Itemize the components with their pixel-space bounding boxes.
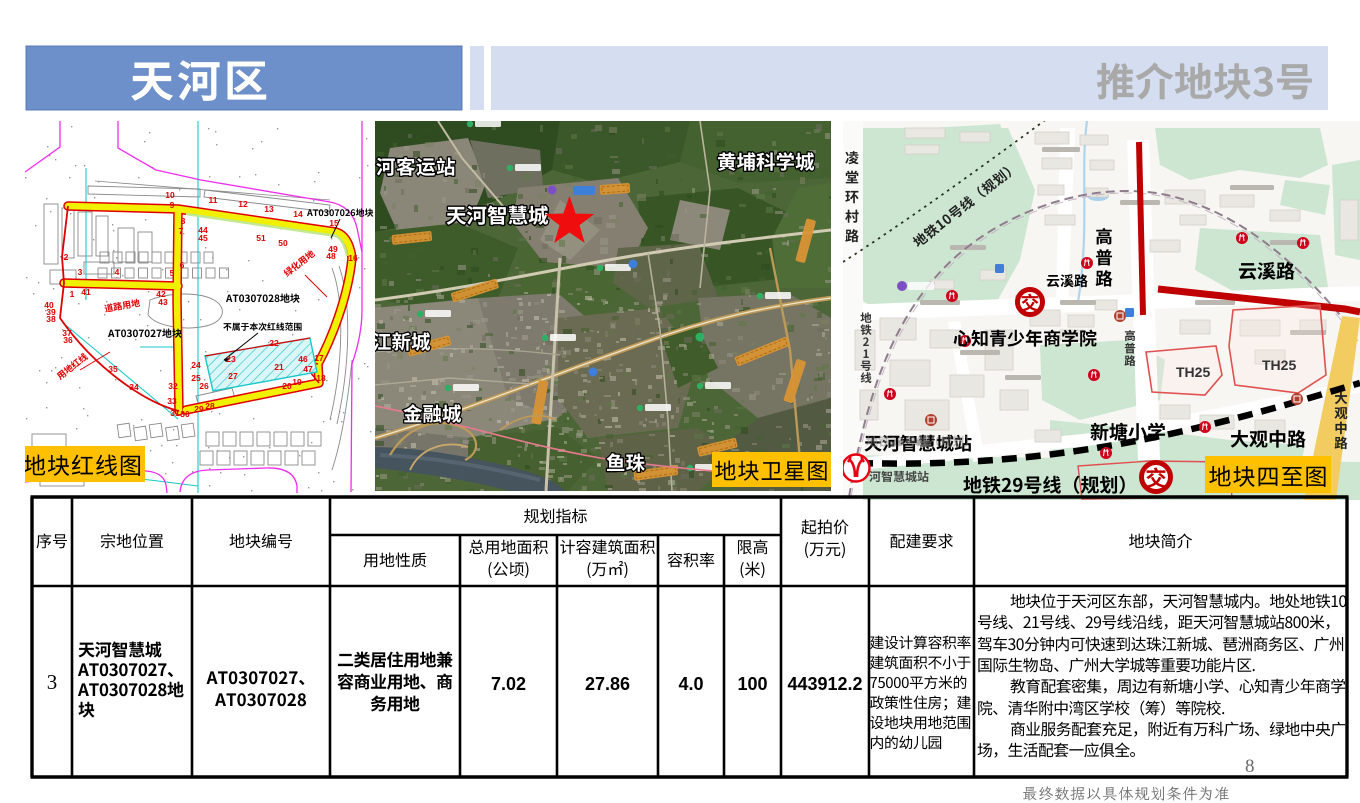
svg-text:27.86: 27.86 bbox=[585, 674, 630, 694]
svg-text:6: 6 bbox=[180, 260, 185, 270]
svg-text:26: 26 bbox=[199, 381, 209, 391]
svg-text:7.02: 7.02 bbox=[491, 674, 526, 694]
svg-text:34: 34 bbox=[129, 382, 139, 392]
svg-text:18: 18 bbox=[316, 373, 326, 383]
svg-text:43: 43 bbox=[158, 297, 168, 307]
svg-text:4.0: 4.0 bbox=[678, 674, 703, 694]
svg-text:16: 16 bbox=[348, 253, 358, 263]
svg-text:13: 13 bbox=[264, 204, 274, 214]
svg-text:46: 46 bbox=[298, 354, 308, 364]
svg-text:10: 10 bbox=[165, 190, 175, 200]
svg-text:30: 30 bbox=[180, 409, 190, 419]
svg-text:7: 7 bbox=[179, 226, 184, 236]
svg-text:9: 9 bbox=[170, 200, 175, 210]
svg-text:22: 22 bbox=[269, 338, 279, 348]
svg-text:1: 1 bbox=[70, 289, 75, 299]
svg-text:29: 29 bbox=[194, 404, 204, 414]
svg-text:15: 15 bbox=[329, 218, 339, 228]
svg-text:11: 11 bbox=[209, 195, 218, 205]
svg-text:50: 50 bbox=[278, 238, 288, 248]
svg-text:23: 23 bbox=[226, 354, 236, 364]
svg-text:TH25: TH25 bbox=[1176, 364, 1210, 380]
svg-text:21: 21 bbox=[274, 362, 284, 372]
svg-text:51: 51 bbox=[256, 233, 266, 243]
svg-text:49: 49 bbox=[328, 244, 338, 254]
svg-text:3: 3 bbox=[78, 267, 83, 277]
svg-text:TH25: TH25 bbox=[1262, 357, 1296, 373]
svg-text:5: 5 bbox=[170, 268, 175, 278]
svg-text:40: 40 bbox=[44, 300, 54, 310]
svg-text:3: 3 bbox=[47, 670, 58, 694]
svg-text:8: 8 bbox=[1245, 756, 1255, 777]
svg-text:20: 20 bbox=[282, 381, 292, 391]
svg-text:45: 45 bbox=[198, 233, 208, 243]
svg-text:17: 17 bbox=[314, 353, 324, 363]
svg-text:41: 41 bbox=[81, 287, 91, 297]
svg-text:47: 47 bbox=[303, 364, 313, 374]
svg-text:4: 4 bbox=[115, 267, 120, 277]
svg-text:19: 19 bbox=[292, 377, 302, 387]
svg-text:8: 8 bbox=[181, 216, 186, 226]
svg-text:24: 24 bbox=[191, 360, 201, 370]
svg-text:35: 35 bbox=[108, 364, 118, 374]
svg-text:37: 37 bbox=[62, 328, 72, 338]
svg-text:14: 14 bbox=[293, 209, 303, 219]
svg-text:443912.2: 443912.2 bbox=[787, 674, 862, 694]
svg-text:27: 27 bbox=[228, 371, 238, 381]
svg-text:28: 28 bbox=[205, 401, 215, 411]
svg-text:100: 100 bbox=[737, 674, 767, 694]
svg-text:31: 31 bbox=[170, 408, 180, 418]
svg-text:33: 33 bbox=[167, 396, 177, 406]
svg-text:2: 2 bbox=[64, 252, 69, 262]
svg-text:32: 32 bbox=[168, 381, 178, 391]
svg-text:12: 12 bbox=[238, 199, 248, 209]
